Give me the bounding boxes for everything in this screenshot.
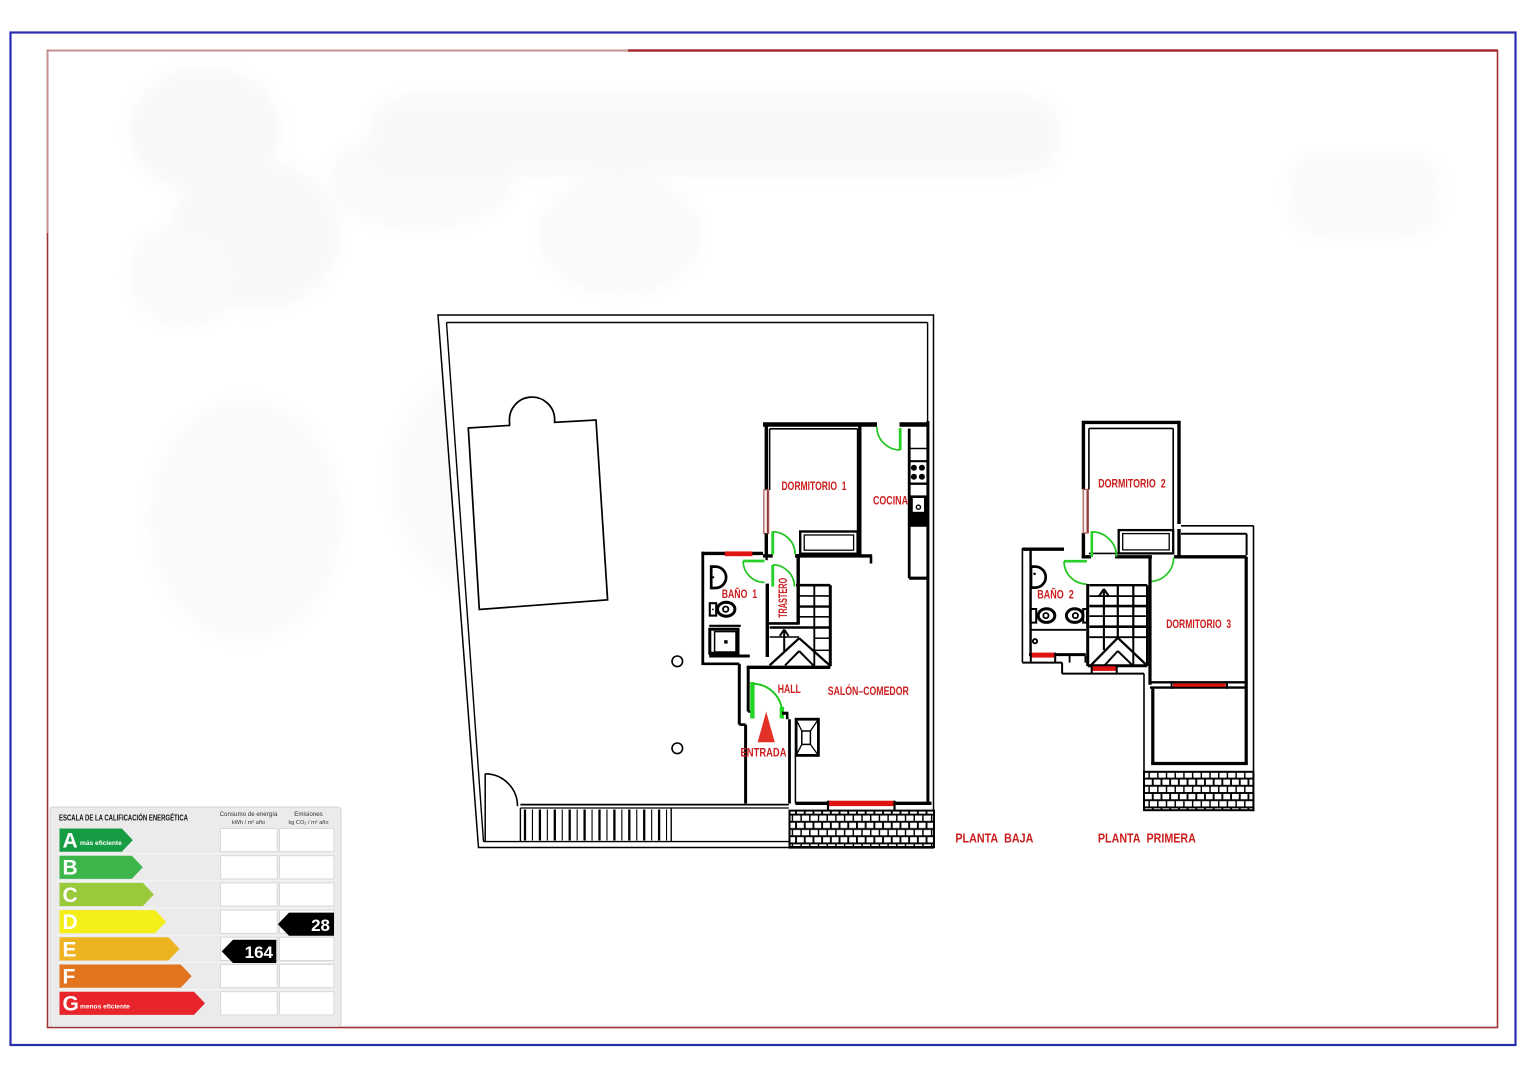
svg-text:A: A (63, 830, 78, 853)
svg-text:BAÑO 1: BAÑO 1 (722, 586, 758, 601)
svg-text:B: B (63, 857, 78, 880)
svg-text:PLANTA PRIMERA: PLANTA PRIMERA (1098, 831, 1196, 845)
svg-text:menos eficiente: menos eficiente (80, 1003, 130, 1010)
svg-text:COCINA: COCINA (873, 493, 908, 507)
svg-text:D: D (63, 911, 78, 934)
svg-text:DORMITORIO 2: DORMITORIO 2 (1098, 476, 1166, 490)
svg-text:PLANTA BAJA: PLANTA BAJA (955, 831, 1033, 845)
svg-text:Emisiones: Emisiones (294, 811, 323, 818)
svg-text:C: C (63, 884, 78, 907)
svg-text:Consumo de energía: Consumo de energía (220, 811, 278, 818)
svg-text:DORMITORIO 1: DORMITORIO 1 (782, 479, 847, 493)
svg-text:F: F (63, 966, 76, 989)
svg-text:164: 164 (245, 943, 274, 962)
svg-text:E: E (63, 938, 77, 961)
svg-text:DORMITORIO 3: DORMITORIO 3 (1166, 617, 1231, 631)
svg-text:ESCALA DE LA CALIFICACIÓN ENER: ESCALA DE LA CALIFICACIÓN ENERGÉTICA (59, 814, 188, 823)
svg-text:kWh / m² año: kWh / m² año (232, 820, 265, 826)
svg-text:ENTRADA: ENTRADA (741, 746, 787, 760)
svg-text:SALÓN–COMEDOR: SALÓN–COMEDOR (828, 683, 909, 698)
svg-text:HALL: HALL (778, 682, 801, 696)
svg-text:28: 28 (311, 916, 330, 935)
svg-text:G: G (63, 993, 79, 1016)
svg-text:kg CO₂ / m² año: kg CO₂ / m² año (288, 820, 328, 826)
svg-text:BAÑO 2: BAÑO 2 (1037, 587, 1074, 602)
svg-text:más eficiente: más eficiente (80, 840, 122, 847)
svg-text:TRASTERO: TRASTERO (777, 578, 790, 618)
